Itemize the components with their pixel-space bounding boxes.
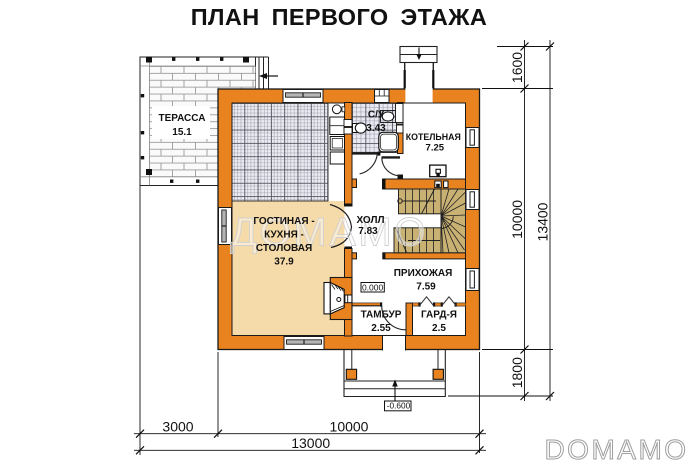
svg-text:ПЛАН ПЕРВОГО ЭТАЖА: ПЛАН ПЕРВОГО ЭТАЖА (191, 4, 488, 30)
svg-text:0.000: 0.000 (362, 282, 384, 292)
svg-text:10000: 10000 (509, 200, 525, 239)
svg-text:ГАРД-Я: ГАРД-Я (421, 310, 457, 321)
svg-text:1600: 1600 (509, 52, 525, 83)
svg-text:СТОЛОВАЯ: СТОЛОВАЯ (256, 243, 312, 254)
svg-text:ТЕРАССА: ТЕРАССА (159, 113, 206, 124)
svg-text:10000: 10000 (330, 418, 369, 434)
svg-text:DOMAMO: DOMAMO (544, 434, 688, 465)
svg-text:3000: 3000 (162, 418, 193, 434)
svg-text:КУХНЯ -: КУХНЯ - (264, 230, 304, 241)
svg-text:7.25: 7.25 (426, 142, 445, 153)
svg-text:2.5: 2.5 (432, 323, 446, 334)
svg-text:-0.600: -0.600 (387, 401, 411, 411)
svg-text:13400: 13400 (535, 202, 551, 241)
svg-text:КОТЕЛЬНАЯ: КОТЕЛЬНАЯ (406, 132, 461, 142)
svg-text:13000: 13000 (291, 435, 330, 451)
svg-text:1800: 1800 (509, 357, 525, 388)
svg-text:ГОСТИНАЯ -: ГОСТИНАЯ - (253, 216, 314, 227)
svg-text:7.59: 7.59 (416, 281, 436, 292)
svg-text:С/У: С/У (368, 110, 385, 121)
svg-text:37.9: 37.9 (274, 257, 294, 268)
svg-text:3.43: 3.43 (366, 123, 386, 134)
svg-text:2.55: 2.55 (371, 323, 391, 334)
svg-text:ХОЛЛ: ХОЛЛ (357, 215, 385, 226)
svg-text:7.83: 7.83 (358, 226, 378, 237)
svg-text:ТАМБУР: ТАМБУР (361, 310, 402, 321)
svg-text:15.1: 15.1 (172, 127, 192, 138)
svg-text:ПРИХОЖАЯ: ПРИХОЖАЯ (394, 268, 453, 279)
